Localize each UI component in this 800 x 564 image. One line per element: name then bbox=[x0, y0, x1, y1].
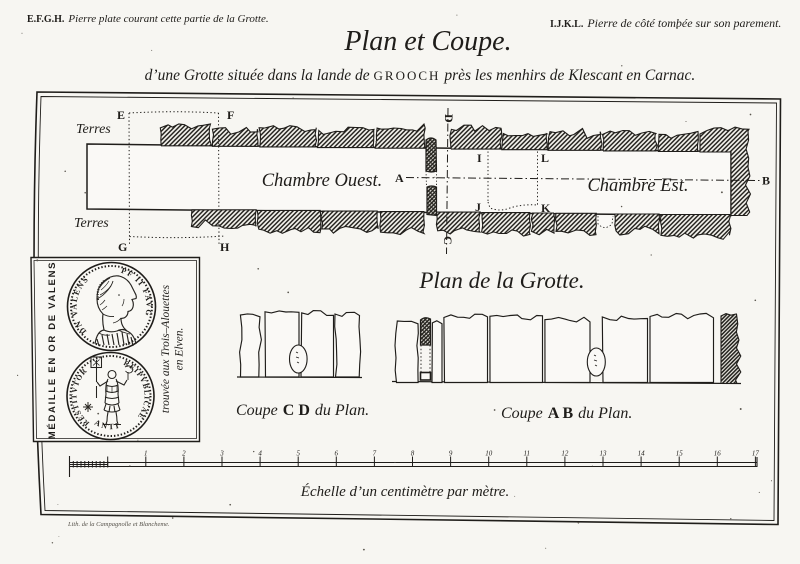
svg-text:E.F.G.H.Pierre plate courant c: E.F.G.H.Pierre plate courant cette parti… bbox=[27, 13, 269, 25]
svg-text:Chambre Ouest.: Chambre Ouest. bbox=[262, 171, 383, 191]
svg-text:6: 6 bbox=[335, 450, 339, 458]
svg-text:L: L bbox=[541, 151, 549, 165]
svg-text:17: 17 bbox=[752, 450, 760, 458]
svg-text:8: 8 bbox=[411, 450, 415, 458]
svg-text:J: J bbox=[475, 200, 481, 214]
svg-text:Chambre Est.: Chambre Est. bbox=[587, 176, 688, 196]
svg-text:trouvée aux Trois–Alouettes: trouvée aux Trois–Alouettes bbox=[160, 284, 172, 413]
svg-text:15: 15 bbox=[676, 450, 684, 458]
svg-text:10: 10 bbox=[485, 450, 493, 458]
svg-text:MÉDAILLE EN OR DE VALENS: MÉDAILLE EN OR DE VALENS bbox=[47, 261, 58, 439]
svg-text:G: G bbox=[118, 240, 127, 254]
svg-text:2: 2 bbox=[182, 450, 186, 458]
svg-text:12: 12 bbox=[561, 450, 569, 458]
svg-text:I: I bbox=[477, 151, 482, 165]
svg-text:H: H bbox=[220, 240, 230, 254]
svg-text:CoupeC Ddu Plan.: CoupeC Ddu Plan. bbox=[236, 402, 369, 419]
svg-text:K: K bbox=[541, 201, 551, 215]
svg-text:Terres: Terres bbox=[76, 122, 111, 137]
svg-text:5: 5 bbox=[296, 450, 300, 458]
svg-text:Plan de la Grotte.: Plan de la Grotte. bbox=[418, 268, 584, 293]
svg-text:C: C bbox=[441, 236, 455, 245]
svg-text:16: 16 bbox=[714, 450, 722, 458]
svg-text:F: F bbox=[227, 108, 234, 122]
svg-text:CoupeA Bdu Plan.: CoupeA Bdu Plan. bbox=[501, 405, 632, 422]
svg-text:13: 13 bbox=[600, 450, 608, 458]
svg-text:9: 9 bbox=[449, 450, 453, 458]
svg-text:A: A bbox=[395, 171, 404, 185]
svg-text:en Elven.: en Elven. bbox=[174, 328, 186, 371]
svg-text:Plan et Coupe.: Plan et Coupe. bbox=[343, 26, 511, 57]
svg-text:Échelle d’un centimètre par mè: Échelle d’un centimètre par mètre. bbox=[300, 483, 509, 500]
svg-text:11: 11 bbox=[524, 450, 530, 458]
svg-text:B: B bbox=[762, 174, 770, 188]
svg-text:Lith. de la Campagnolle et Bla: Lith. de la Campagnolle et Blancheme. bbox=[67, 521, 170, 528]
svg-text:7: 7 bbox=[373, 450, 377, 458]
svg-text:d’une Grotte située dans la la: d’une Grotte située dans la lande de GRO… bbox=[145, 67, 696, 84]
svg-text:14: 14 bbox=[638, 450, 646, 458]
svg-text:3: 3 bbox=[219, 450, 224, 458]
svg-text:4: 4 bbox=[258, 450, 262, 458]
svg-text:D: D bbox=[442, 114, 456, 123]
svg-text:E: E bbox=[117, 108, 125, 122]
svg-text:Terres: Terres bbox=[74, 216, 109, 231]
svg-text:1: 1 bbox=[144, 450, 148, 458]
